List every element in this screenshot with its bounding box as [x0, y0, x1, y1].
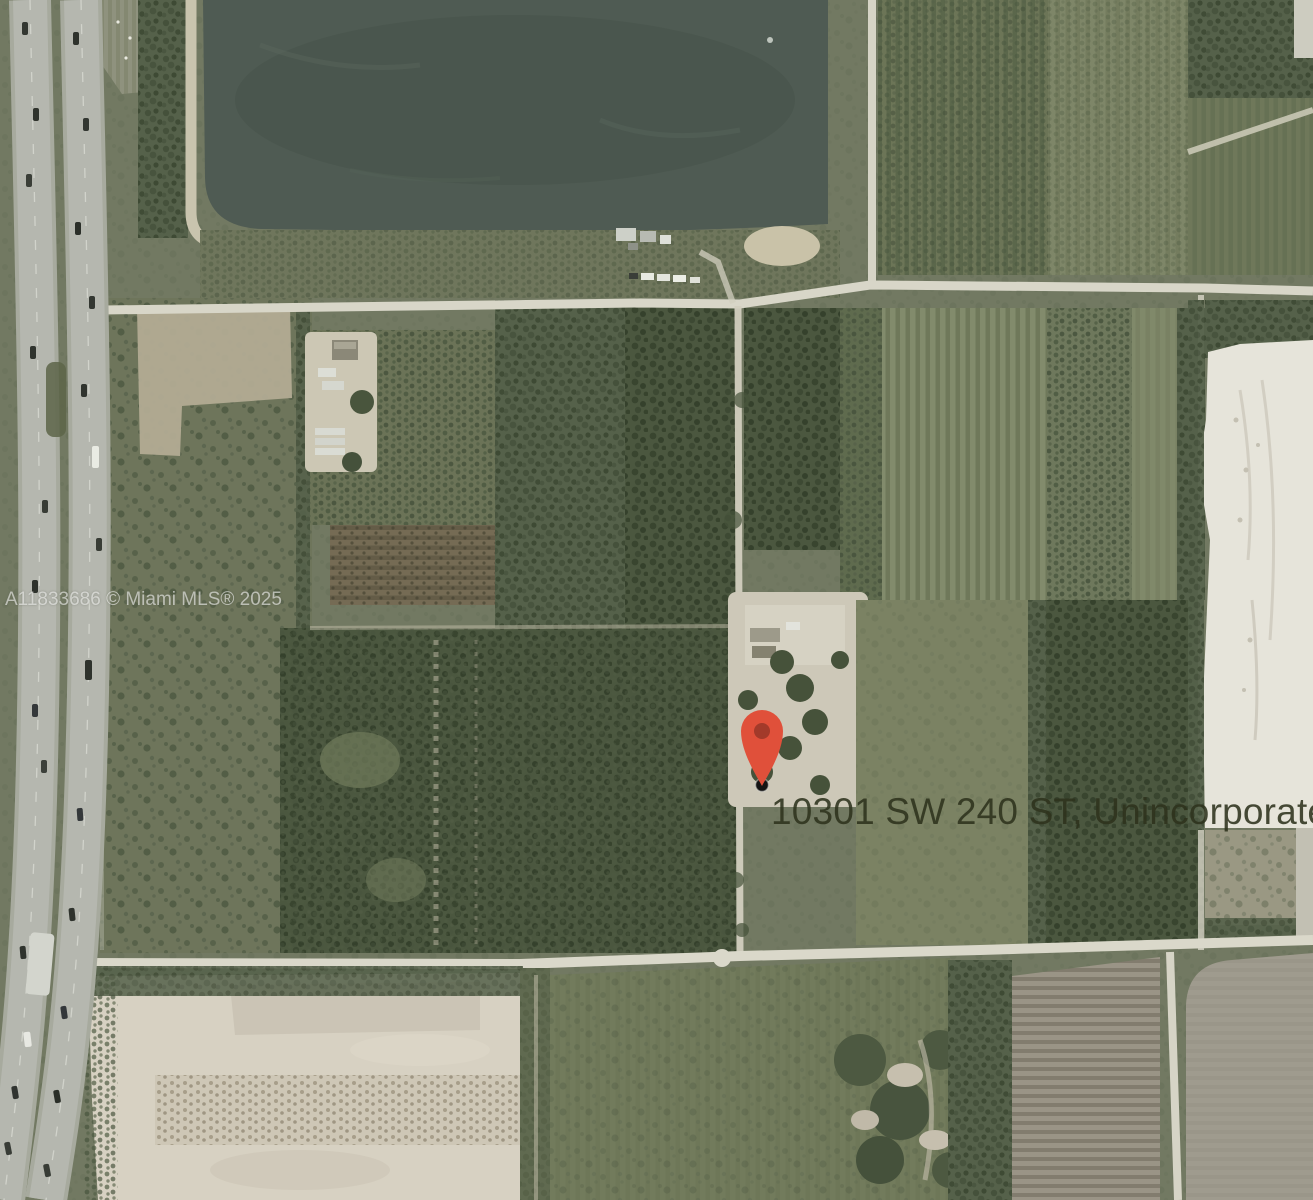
satellite-map[interactable]: A11833686 © Miami MLS® 2025 10301 SW 240… [0, 0, 1313, 1200]
farmstead-northwest [305, 332, 377, 472]
fields-topright [878, 0, 1313, 275]
woods-lower-midleft [280, 626, 740, 953]
lake-south-shore [200, 226, 840, 298]
bottom-band [82, 940, 1313, 1200]
map-canvas [0, 0, 1313, 1200]
tree-band-lake-west [138, 0, 188, 238]
highway [4, 0, 102, 1200]
meadow-field [856, 600, 1046, 945]
property-clearing [728, 592, 868, 807]
woods-east-of-meadow [1046, 600, 1204, 945]
lake [203, 0, 848, 233]
